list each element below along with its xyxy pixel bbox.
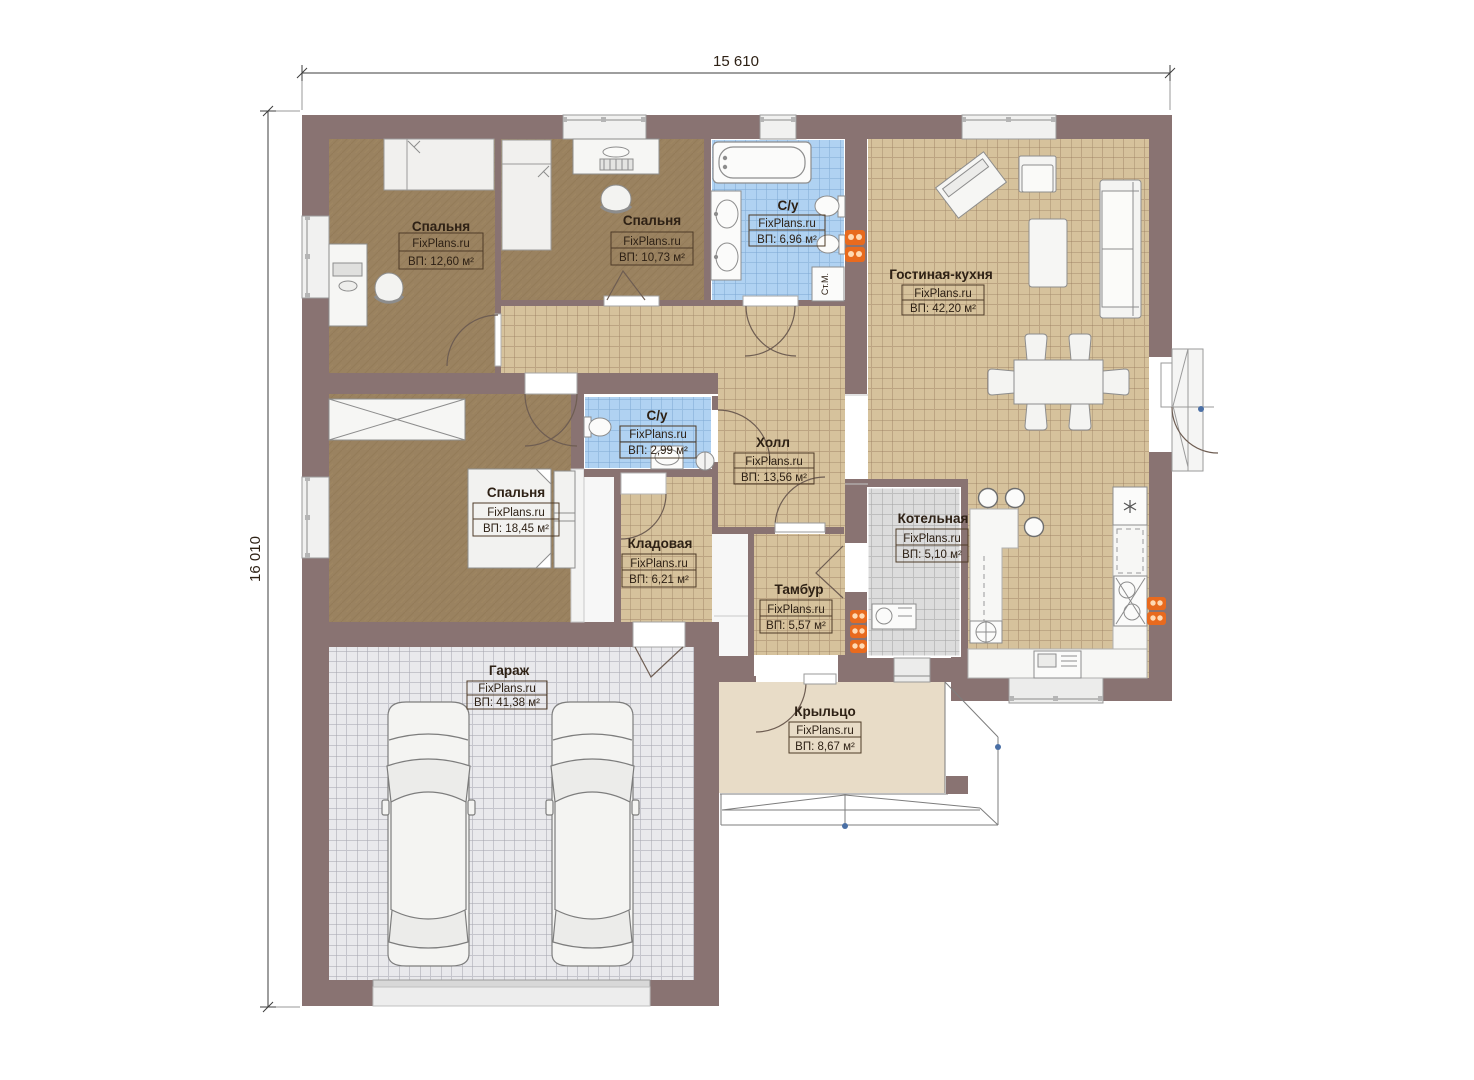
svg-text:ВП: 13,56 м²: ВП: 13,56 м² bbox=[741, 472, 807, 484]
svg-text:ВП: 42,20 м²: ВП: 42,20 м² bbox=[910, 303, 976, 315]
svg-text:FixPlans.ru: FixPlans.ru bbox=[623, 236, 681, 248]
svg-text:Холл: Холл bbox=[756, 435, 790, 450]
svg-text:FixPlans.ru: FixPlans.ru bbox=[487, 507, 545, 519]
svg-text:С/у: С/у bbox=[777, 198, 799, 213]
svg-text:Кладовая: Кладовая bbox=[628, 536, 693, 551]
svg-text:Крыльцо: Крыльцо bbox=[794, 704, 855, 719]
svg-text:ВП: 6,21 м²: ВП: 6,21 м² bbox=[629, 574, 689, 586]
svg-text:ВП: 5,57 м²: ВП: 5,57 м² bbox=[766, 620, 826, 632]
svg-text:FixPlans.ru: FixPlans.ru bbox=[412, 238, 470, 250]
svg-text:ВП: 2,99 м²: ВП: 2,99 м² bbox=[628, 445, 688, 457]
svg-text:Гараж: Гараж bbox=[489, 663, 530, 678]
svg-text:Спальня: Спальня bbox=[623, 213, 681, 228]
svg-text:FixPlans.ru: FixPlans.ru bbox=[767, 604, 825, 616]
svg-text:Гостиная-кухня: Гостиная-кухня bbox=[889, 267, 992, 282]
svg-text:Тамбур: Тамбур bbox=[775, 582, 824, 597]
svg-text:С/у: С/у bbox=[646, 408, 668, 423]
svg-text:ВП: 41,38 м²: ВП: 41,38 м² bbox=[474, 697, 540, 709]
svg-text:ВП: 10,73 м²: ВП: 10,73 м² bbox=[619, 252, 685, 264]
svg-text:FixPlans.ru: FixPlans.ru bbox=[629, 429, 687, 441]
svg-text:FixPlans.ru: FixPlans.ru bbox=[745, 456, 803, 468]
svg-text:FixPlans.ru: FixPlans.ru bbox=[796, 725, 854, 737]
svg-text:FixPlans.ru: FixPlans.ru bbox=[758, 218, 816, 230]
svg-text:ВП: 8,67 м²: ВП: 8,67 м² bbox=[795, 741, 855, 753]
svg-text:FixPlans.ru: FixPlans.ru bbox=[478, 683, 536, 695]
svg-text:15 610: 15 610 bbox=[713, 53, 759, 70]
svg-text:FixPlans.ru: FixPlans.ru bbox=[630, 558, 688, 570]
svg-text:16 010: 16 010 bbox=[247, 536, 264, 582]
svg-text:Спальня: Спальня bbox=[412, 219, 470, 234]
svg-text:Спальня: Спальня bbox=[487, 485, 545, 500]
svg-text:FixPlans.ru: FixPlans.ru bbox=[914, 288, 972, 300]
svg-text:Котельная: Котельная bbox=[898, 511, 969, 526]
svg-text:ВП: 12,60 м²: ВП: 12,60 м² bbox=[408, 256, 474, 268]
svg-text:ВП: 6,96 м²: ВП: 6,96 м² bbox=[757, 234, 817, 246]
svg-text:FixPlans.ru: FixPlans.ru bbox=[903, 533, 961, 545]
svg-text:ВП: 18,45 м²: ВП: 18,45 м² bbox=[483, 523, 549, 535]
svg-text:ВП: 5,10 м²: ВП: 5,10 м² bbox=[902, 549, 962, 561]
svg-text:Ст.М.: Ст.М. bbox=[820, 273, 830, 295]
